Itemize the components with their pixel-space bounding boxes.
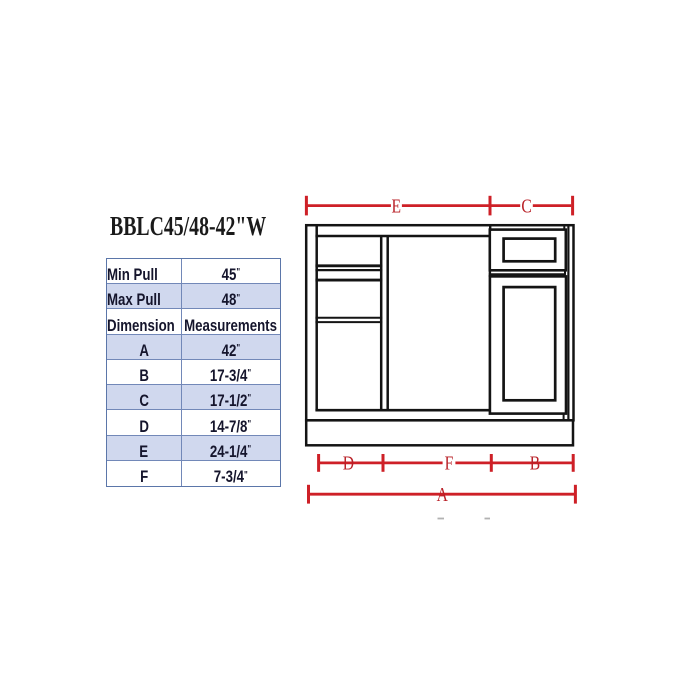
svg-text:D: D — [343, 452, 354, 474]
svg-text:F: F — [445, 452, 454, 474]
svg-text:E: E — [391, 195, 401, 217]
svg-text:C: C — [521, 195, 531, 217]
svg-text:A: A — [437, 483, 448, 505]
svg-text:B: B — [530, 452, 540, 474]
